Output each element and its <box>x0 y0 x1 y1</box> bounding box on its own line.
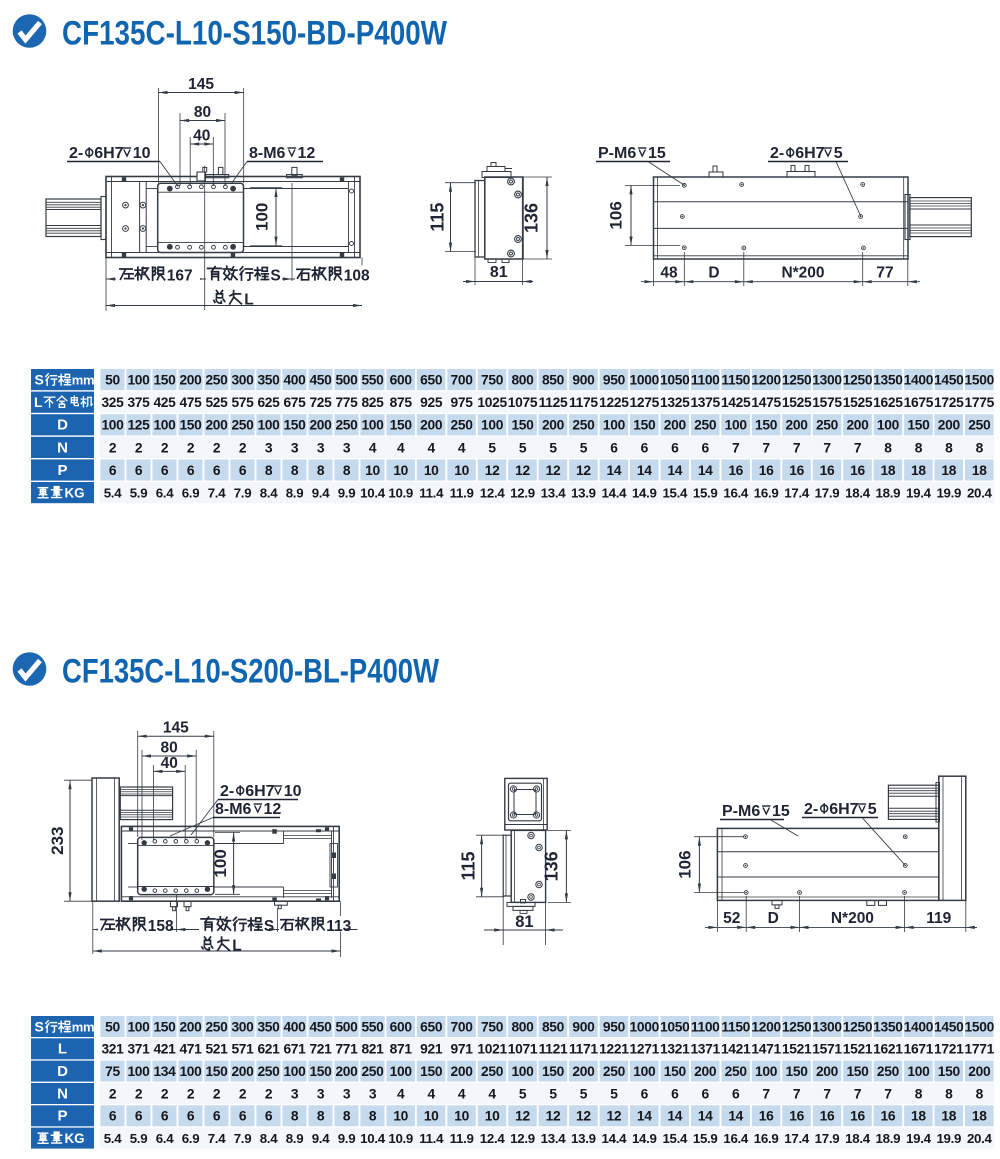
svg-text:9.9: 9.9 <box>338 485 356 500</box>
svg-text:1221: 1221 <box>599 1042 629 1057</box>
svg-text:11.9: 11.9 <box>450 485 474 500</box>
svg-text:100: 100 <box>127 1020 150 1035</box>
svg-text:800: 800 <box>511 1020 534 1035</box>
svg-text:1500: 1500 <box>965 372 995 387</box>
svg-text:6H7: 6H7 <box>94 145 123 162</box>
svg-text:4: 4 <box>458 440 466 455</box>
svg-text:6.4: 6.4 <box>156 1131 174 1146</box>
svg-text:150: 150 <box>511 417 534 432</box>
svg-text:8: 8 <box>945 440 953 455</box>
svg-text:10: 10 <box>393 1109 408 1124</box>
svg-text:18: 18 <box>881 462 896 477</box>
svg-text:3: 3 <box>317 440 325 455</box>
svg-text:14: 14 <box>698 1109 713 1124</box>
svg-text:12.9: 12.9 <box>510 485 535 500</box>
svg-text:17.4: 17.4 <box>784 1131 810 1146</box>
svg-text:775: 775 <box>335 395 358 410</box>
svg-text:6H7: 6H7 <box>829 801 858 818</box>
svg-text:14: 14 <box>667 1109 682 1124</box>
svg-text:1325: 1325 <box>660 395 690 410</box>
svg-text:6: 6 <box>671 440 679 455</box>
svg-text:100: 100 <box>127 1064 150 1079</box>
svg-text:50: 50 <box>105 372 120 387</box>
svg-text:14.4: 14.4 <box>602 1131 628 1146</box>
svg-text:13.4: 13.4 <box>541 1131 567 1146</box>
svg-text:250: 250 <box>877 1064 900 1079</box>
svg-text:2: 2 <box>239 1087 247 1102</box>
svg-text:15: 15 <box>772 803 790 820</box>
svg-text:250: 250 <box>816 417 839 432</box>
svg-text:N: N <box>57 1086 68 1103</box>
svg-text:10.9: 10.9 <box>388 1131 413 1146</box>
svg-text:16.9: 16.9 <box>754 485 779 500</box>
svg-text:871: 871 <box>390 1042 413 1057</box>
svg-text:9.9: 9.9 <box>338 1131 356 1146</box>
svg-text:18: 18 <box>941 462 956 477</box>
svg-text:950: 950 <box>603 372 626 387</box>
svg-text:1050: 1050 <box>660 372 690 387</box>
svg-text:6: 6 <box>187 1109 195 1124</box>
svg-text:7: 7 <box>762 1087 770 1102</box>
svg-text:L: L <box>34 394 43 410</box>
svg-text:4: 4 <box>369 440 377 455</box>
svg-text:6: 6 <box>161 462 169 477</box>
svg-text:10: 10 <box>454 462 469 477</box>
svg-text:15.9: 15.9 <box>693 1131 718 1146</box>
svg-text:mm: mm <box>72 372 94 387</box>
svg-text:3: 3 <box>291 1087 299 1102</box>
svg-text:100: 100 <box>725 417 748 432</box>
svg-text:1450: 1450 <box>934 1020 964 1035</box>
svg-text:3: 3 <box>291 440 299 455</box>
svg-text:1021: 1021 <box>477 1042 507 1057</box>
svg-text:7: 7 <box>854 440 862 455</box>
svg-text:1521: 1521 <box>782 1042 812 1057</box>
svg-text:20.4: 20.4 <box>967 1131 993 1146</box>
svg-text:100: 100 <box>603 417 626 432</box>
svg-text:1200: 1200 <box>751 1020 781 1035</box>
svg-text:L: L <box>232 938 241 955</box>
svg-text:10.4: 10.4 <box>360 1131 386 1146</box>
svg-text:16: 16 <box>789 1109 804 1124</box>
svg-text:50: 50 <box>105 1020 120 1035</box>
svg-text:1521: 1521 <box>843 1042 873 1057</box>
svg-text:1321: 1321 <box>660 1042 690 1057</box>
svg-text:700: 700 <box>451 372 474 387</box>
svg-text:421: 421 <box>153 1042 176 1057</box>
svg-text:80: 80 <box>194 104 211 121</box>
svg-text:5: 5 <box>519 440 527 455</box>
svg-text:1250: 1250 <box>782 372 812 387</box>
svg-text:1400: 1400 <box>904 372 934 387</box>
svg-text:6: 6 <box>239 462 247 477</box>
svg-text:4: 4 <box>428 440 436 455</box>
svg-text:1050: 1050 <box>660 1020 690 1035</box>
svg-text:2: 2 <box>109 440 117 455</box>
svg-text:100: 100 <box>511 1064 534 1079</box>
svg-text:5: 5 <box>580 440 588 455</box>
svg-text:150: 150 <box>205 1064 228 1079</box>
svg-text:D: D <box>57 416 68 433</box>
svg-text:6.9: 6.9 <box>182 1131 200 1146</box>
svg-text:6.9: 6.9 <box>182 485 200 500</box>
svg-text:N: N <box>57 439 68 456</box>
svg-text:11.9: 11.9 <box>450 1131 474 1146</box>
svg-text:15.4: 15.4 <box>662 485 688 500</box>
svg-text:N*200: N*200 <box>781 264 824 281</box>
svg-text:250: 250 <box>603 1064 626 1079</box>
svg-text:11.4: 11.4 <box>419 485 444 500</box>
svg-text:1250: 1250 <box>782 1020 812 1035</box>
svg-text:2: 2 <box>239 440 247 455</box>
svg-text:115: 115 <box>459 851 479 880</box>
svg-text:150: 150 <box>179 417 202 432</box>
svg-text:150: 150 <box>907 417 930 432</box>
svg-text:300: 300 <box>231 372 254 387</box>
svg-text:14: 14 <box>728 1109 743 1124</box>
svg-text:5: 5 <box>580 1087 588 1102</box>
svg-text:100: 100 <box>390 1064 413 1079</box>
svg-text:150: 150 <box>153 1020 176 1035</box>
svg-text:10: 10 <box>424 462 439 477</box>
svg-text:1500: 1500 <box>965 1020 995 1035</box>
svg-text:150: 150 <box>153 372 176 387</box>
svg-text:250: 250 <box>205 372 228 387</box>
svg-text:8.9: 8.9 <box>286 485 304 500</box>
svg-text:8: 8 <box>369 1109 377 1124</box>
svg-text:1621: 1621 <box>873 1042 903 1057</box>
svg-text:6: 6 <box>702 440 710 455</box>
svg-text:4: 4 <box>488 1087 496 1102</box>
svg-text:14: 14 <box>637 1109 652 1124</box>
svg-text:671: 671 <box>283 1042 306 1057</box>
svg-text:L: L <box>244 292 253 309</box>
svg-text:2: 2 <box>135 440 143 455</box>
svg-text:5.9: 5.9 <box>130 485 148 500</box>
svg-text:150: 150 <box>755 417 778 432</box>
svg-text:6.4: 6.4 <box>156 485 174 500</box>
svg-text:6: 6 <box>671 1087 679 1102</box>
svg-text:2-: 2- <box>220 783 234 800</box>
svg-text:18.4: 18.4 <box>845 485 871 500</box>
svg-text:1350: 1350 <box>873 372 903 387</box>
svg-text:5: 5 <box>549 440 557 455</box>
svg-text:1275: 1275 <box>630 395 660 410</box>
svg-text:19.4: 19.4 <box>906 485 932 500</box>
svg-text:1175: 1175 <box>569 395 598 410</box>
svg-text:1125: 1125 <box>539 395 568 410</box>
svg-text:3: 3 <box>265 440 273 455</box>
svg-text:6: 6 <box>641 440 649 455</box>
svg-text:77: 77 <box>876 264 893 281</box>
svg-text:321: 321 <box>101 1042 124 1057</box>
svg-text:350: 350 <box>257 372 280 387</box>
svg-text:100: 100 <box>101 417 124 432</box>
svg-text:100: 100 <box>127 372 150 387</box>
svg-text:1250: 1250 <box>843 372 873 387</box>
svg-text:1671: 1671 <box>904 1042 934 1057</box>
svg-text:650: 650 <box>420 372 443 387</box>
svg-text:100: 100 <box>153 417 176 432</box>
svg-text:15.9: 15.9 <box>693 485 718 500</box>
svg-text:6: 6 <box>213 1109 221 1124</box>
svg-text:6H7: 6H7 <box>245 783 274 800</box>
svg-text:100: 100 <box>283 1064 306 1079</box>
svg-text:100: 100 <box>257 417 280 432</box>
svg-text:P: P <box>57 1108 67 1125</box>
svg-text:10: 10 <box>133 145 151 162</box>
svg-text:125: 125 <box>127 417 150 432</box>
svg-text:200: 200 <box>335 1064 358 1079</box>
svg-text:CF135C-L10-S150-BD-P400W: CF135C-L10-S150-BD-P400W <box>62 15 448 53</box>
svg-text:16.9: 16.9 <box>754 1131 779 1146</box>
svg-text:1721: 1721 <box>934 1042 964 1057</box>
svg-text:250: 250 <box>451 417 474 432</box>
svg-text:700: 700 <box>451 1020 474 1035</box>
svg-text:550: 550 <box>361 1020 384 1035</box>
svg-text:10: 10 <box>485 1109 500 1124</box>
svg-text:425: 425 <box>153 395 176 410</box>
svg-text:10: 10 <box>284 783 302 800</box>
svg-text:500: 500 <box>335 372 358 387</box>
svg-text:100: 100 <box>877 417 900 432</box>
svg-text:821: 821 <box>361 1042 384 1057</box>
svg-text:13.4: 13.4 <box>541 485 567 500</box>
svg-text:1100: 1100 <box>691 1020 720 1035</box>
svg-text:6: 6 <box>135 1109 143 1124</box>
svg-text:16: 16 <box>728 462 743 477</box>
svg-text:5.4: 5.4 <box>104 1131 122 1146</box>
svg-text:250: 250 <box>257 1064 280 1079</box>
svg-text:250: 250 <box>361 1064 384 1079</box>
svg-text:625: 625 <box>257 395 280 410</box>
svg-text:6: 6 <box>265 1109 273 1124</box>
svg-text:8: 8 <box>343 1109 351 1124</box>
svg-text:16.4: 16.4 <box>723 1131 749 1146</box>
svg-text:6: 6 <box>702 1087 710 1102</box>
svg-text:16: 16 <box>820 1109 835 1124</box>
svg-text:6: 6 <box>187 462 195 477</box>
svg-text:1425: 1425 <box>721 395 751 410</box>
svg-text:4: 4 <box>397 1087 405 1102</box>
svg-text:12: 12 <box>607 1109 622 1124</box>
svg-text:250: 250 <box>694 417 717 432</box>
svg-text:5: 5 <box>519 1087 527 1102</box>
svg-text:6: 6 <box>109 1109 117 1124</box>
svg-text:N*200: N*200 <box>831 910 874 927</box>
svg-text:16: 16 <box>820 462 835 477</box>
svg-text:119: 119 <box>926 910 951 927</box>
svg-text:8: 8 <box>317 462 325 477</box>
svg-text:100: 100 <box>481 417 504 432</box>
svg-text:12.4: 12.4 <box>480 485 506 500</box>
svg-text:8: 8 <box>317 1109 325 1124</box>
svg-text:475: 475 <box>179 395 202 410</box>
svg-text:18.9: 18.9 <box>876 485 901 500</box>
svg-text:136: 136 <box>522 203 542 233</box>
svg-text:6: 6 <box>213 462 221 477</box>
svg-text:18.9: 18.9 <box>876 1131 901 1146</box>
svg-text:1075: 1075 <box>508 395 538 410</box>
svg-text:13.9: 13.9 <box>571 1131 596 1146</box>
svg-text:17.9: 17.9 <box>815 485 840 500</box>
svg-text:150: 150 <box>664 1064 687 1079</box>
svg-text:525: 525 <box>205 395 228 410</box>
svg-text:2-: 2- <box>804 801 818 818</box>
svg-text:200: 200 <box>542 417 565 432</box>
svg-text:100: 100 <box>633 1064 656 1079</box>
svg-text:400: 400 <box>283 372 306 387</box>
svg-text:250: 250 <box>725 1064 748 1079</box>
svg-text:158: 158 <box>148 918 174 935</box>
svg-text:1575: 1575 <box>812 395 842 410</box>
svg-text:5.4: 5.4 <box>104 485 122 500</box>
svg-text:1150: 1150 <box>721 1020 750 1035</box>
svg-text:10: 10 <box>454 1109 469 1124</box>
svg-text:325: 325 <box>101 395 124 410</box>
svg-text:100: 100 <box>907 1064 930 1079</box>
svg-text:19.9: 19.9 <box>936 485 961 500</box>
svg-text:2: 2 <box>265 1087 273 1102</box>
svg-text:8: 8 <box>915 1087 923 1102</box>
svg-text:200: 200 <box>786 417 809 432</box>
svg-text:11.4: 11.4 <box>419 1131 444 1146</box>
svg-text:7: 7 <box>762 440 770 455</box>
svg-text:8: 8 <box>343 462 351 477</box>
svg-text:1071: 1071 <box>508 1042 538 1057</box>
svg-text:2: 2 <box>213 1087 221 1102</box>
svg-text:1771: 1771 <box>965 1042 995 1057</box>
svg-text:134: 134 <box>153 1064 176 1079</box>
svg-text:1100: 1100 <box>691 372 720 387</box>
svg-text:7: 7 <box>793 1087 801 1102</box>
svg-text:106: 106 <box>676 850 695 878</box>
svg-text:200: 200 <box>694 1064 717 1079</box>
svg-text:150: 150 <box>390 417 413 432</box>
svg-text:200: 200 <box>816 1064 839 1079</box>
svg-text:250: 250 <box>335 417 358 432</box>
svg-text:1571: 1571 <box>812 1042 842 1057</box>
svg-text:18.4: 18.4 <box>845 1131 871 1146</box>
svg-text:10: 10 <box>365 462 380 477</box>
svg-text:971: 971 <box>451 1042 474 1057</box>
svg-text:16: 16 <box>759 462 774 477</box>
svg-text:8: 8 <box>945 1087 953 1102</box>
svg-text:875: 875 <box>390 395 413 410</box>
svg-text:167: 167 <box>167 268 193 285</box>
svg-text:900: 900 <box>572 372 595 387</box>
svg-text:5: 5 <box>610 1087 618 1102</box>
svg-text:18: 18 <box>972 462 987 477</box>
svg-text:12: 12 <box>515 1109 530 1124</box>
svg-text:7.9: 7.9 <box>234 485 252 500</box>
svg-text:150: 150 <box>420 1064 443 1079</box>
svg-text:17.9: 17.9 <box>815 1131 840 1146</box>
svg-text:1025: 1025 <box>477 395 507 410</box>
svg-text:621: 621 <box>257 1042 280 1057</box>
svg-text:1475: 1475 <box>751 395 781 410</box>
svg-text:6: 6 <box>109 462 117 477</box>
svg-text:5: 5 <box>834 145 843 162</box>
svg-text:14.4: 14.4 <box>602 485 628 500</box>
svg-text:15: 15 <box>648 145 666 162</box>
svg-text:550: 550 <box>361 372 384 387</box>
svg-text:1250: 1250 <box>843 1020 873 1035</box>
svg-text:18: 18 <box>941 1109 956 1124</box>
svg-text:3: 3 <box>317 1087 325 1102</box>
svg-text:mm: mm <box>72 1020 94 1035</box>
svg-text:106: 106 <box>607 201 626 229</box>
svg-text:10.9: 10.9 <box>388 485 413 500</box>
svg-text:1421: 1421 <box>721 1042 751 1057</box>
svg-text:8-M6: 8-M6 <box>249 145 286 162</box>
svg-text:16: 16 <box>881 1109 896 1124</box>
svg-text:8: 8 <box>976 1087 984 1102</box>
svg-text:7: 7 <box>823 440 831 455</box>
svg-text:8.9: 8.9 <box>286 1131 304 1146</box>
svg-text:7: 7 <box>823 1087 831 1102</box>
svg-text:200: 200 <box>205 417 228 432</box>
svg-text:1371: 1371 <box>690 1042 720 1057</box>
svg-text:13.9: 13.9 <box>571 485 596 500</box>
svg-text:12.9: 12.9 <box>510 1131 535 1146</box>
svg-text:650: 650 <box>420 1020 443 1035</box>
svg-text:40: 40 <box>161 755 178 772</box>
svg-text:150: 150 <box>786 1064 809 1079</box>
svg-text:1675: 1675 <box>904 395 934 410</box>
svg-text:500: 500 <box>335 1020 358 1035</box>
svg-text:100: 100 <box>179 1064 202 1079</box>
svg-text:2: 2 <box>109 1087 117 1102</box>
svg-text:8: 8 <box>291 1109 299 1124</box>
svg-text:1525: 1525 <box>782 395 812 410</box>
svg-text:100: 100 <box>361 417 384 432</box>
svg-text:1775: 1775 <box>965 395 995 410</box>
svg-text:200: 200 <box>231 1064 254 1079</box>
svg-text:2-: 2- <box>770 145 784 162</box>
svg-text:7: 7 <box>793 440 801 455</box>
svg-text:P: P <box>57 461 67 478</box>
svg-text:1300: 1300 <box>812 1020 842 1035</box>
svg-text:200: 200 <box>664 417 687 432</box>
svg-text:113: 113 <box>326 918 351 935</box>
svg-text:675: 675 <box>283 395 306 410</box>
svg-text:100: 100 <box>211 849 230 877</box>
svg-text:9.4: 9.4 <box>312 485 330 500</box>
svg-text:14: 14 <box>698 462 713 477</box>
svg-text:8: 8 <box>265 462 273 477</box>
svg-text:100: 100 <box>253 203 272 231</box>
svg-text:575: 575 <box>231 395 254 410</box>
svg-text:12: 12 <box>298 145 316 162</box>
svg-text:5: 5 <box>549 1087 557 1102</box>
svg-text:8: 8 <box>291 462 299 477</box>
svg-text:6: 6 <box>641 1087 649 1102</box>
svg-text:600: 600 <box>390 372 413 387</box>
svg-text:6: 6 <box>239 1109 247 1124</box>
svg-text:CF135C-L10-S200-BL-P400W: CF135C-L10-S200-BL-P400W <box>62 653 440 691</box>
svg-text:771: 771 <box>335 1042 358 1057</box>
svg-text:200: 200 <box>938 417 961 432</box>
svg-text:15.4: 15.4 <box>662 1131 688 1146</box>
svg-text:150: 150 <box>846 1064 869 1079</box>
svg-text:200: 200 <box>846 417 869 432</box>
svg-text:5.9: 5.9 <box>130 1131 148 1146</box>
svg-text:7.4: 7.4 <box>208 485 226 500</box>
svg-text:100: 100 <box>755 1064 778 1079</box>
svg-text:200: 200 <box>309 417 332 432</box>
svg-text:2: 2 <box>161 440 169 455</box>
